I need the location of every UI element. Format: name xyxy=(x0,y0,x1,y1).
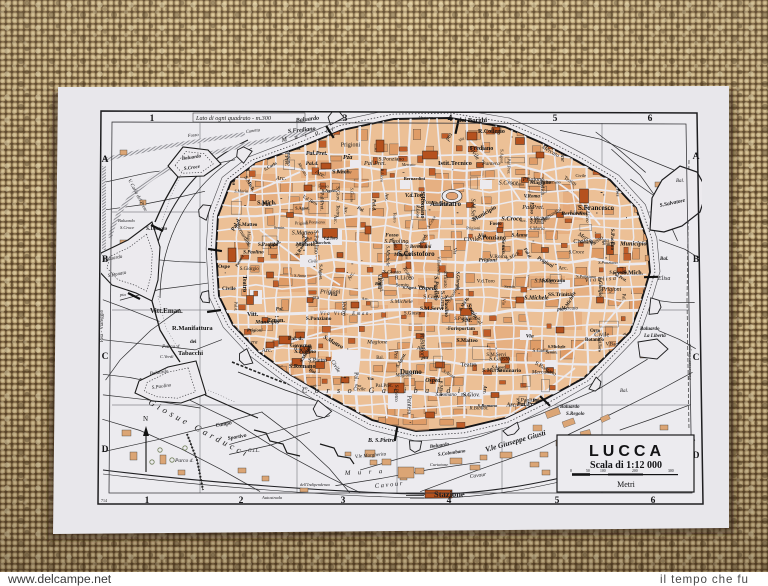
svg-text:S.Giov.: S.Giov. xyxy=(335,186,341,201)
svg-text:S.M.Servi: S.M.Servi xyxy=(486,353,506,358)
svg-text:Mercato: Mercato xyxy=(401,162,416,167)
svg-text:S.Michele: S.Michele xyxy=(390,299,413,305)
svg-text:Arc.: Arc. xyxy=(344,207,349,214)
svg-text:S.Regolo: S.Regolo xyxy=(566,412,585,417)
svg-text:Arc.: Arc. xyxy=(275,175,286,182)
svg-text:Arc.: Arc. xyxy=(362,296,370,301)
svg-text:B: B xyxy=(693,255,700,265)
svg-text:Fosso: Fosso xyxy=(318,184,329,189)
svg-text:Fosso: Fosso xyxy=(385,232,399,238)
svg-text:Montecatini-Empoli: Montecatini-Empoli xyxy=(687,343,692,380)
svg-text:Curtatone: Curtatone xyxy=(430,462,448,467)
svg-text:S.Ponziano: S.Ponziano xyxy=(598,260,618,265)
svg-text:S.Giusto: S.Giusto xyxy=(350,188,355,202)
svg-text:Mercato: Mercato xyxy=(560,306,578,311)
svg-text:Magione: Magione xyxy=(366,339,388,345)
svg-text:Lato di ogni quadrato - m.300: Lato di ogni quadrato - m.300 xyxy=(195,115,272,122)
svg-text:Via: Via xyxy=(452,248,457,255)
svg-text:B: B xyxy=(102,255,109,265)
svg-text:50: 50 xyxy=(586,469,590,473)
svg-text:Teatro: Teatro xyxy=(393,212,398,222)
svg-text:S.Michele: S.Michele xyxy=(524,295,549,301)
svg-text:S.Ponziano: S.Ponziano xyxy=(477,236,506,242)
svg-text:C: C xyxy=(693,353,700,363)
svg-text:Semin.: Semin. xyxy=(274,225,286,230)
svg-text:S.Giusto: S.Giusto xyxy=(404,312,422,317)
svg-text:Seminario: Seminario xyxy=(497,368,521,374)
svg-text:Anfiteatro: Anfiteatro xyxy=(430,200,461,208)
svg-text:Prigioni: Prigioni xyxy=(466,226,481,231)
svg-text:Vitt.: Vitt. xyxy=(247,312,259,318)
svg-text:1: 1 xyxy=(145,496,150,506)
svg-text:S.Mich.: S.Mich. xyxy=(257,200,277,206)
svg-text:V.d.Toro: V.d.Toro xyxy=(405,193,425,199)
svg-text:S.Gervasio: S.Gervasio xyxy=(542,279,566,284)
svg-text:A: A xyxy=(693,152,700,162)
svg-text:Botanico: Botanico xyxy=(585,338,604,343)
svg-text:Pza: Pza xyxy=(343,154,352,161)
svg-text:S.Croce: S.Croce xyxy=(501,216,522,223)
svg-text:S.Paolino: S.Paolino xyxy=(258,243,279,248)
svg-text:Governo: Governo xyxy=(290,343,311,349)
svg-text:Pisa - Viareggio: Pisa - Viareggio xyxy=(100,309,105,342)
svg-text:S.Giorgio: S.Giorgio xyxy=(454,271,459,290)
svg-text:V.Bacchett.: V.Bacchett. xyxy=(437,256,442,276)
svg-text:Frediano: Frediano xyxy=(470,146,493,152)
svg-text:Teatro: Teatro xyxy=(241,276,247,293)
svg-text:LUCCA: LUCCA xyxy=(589,443,665,460)
svg-text:N: N xyxy=(143,415,148,423)
svg-text:www.delcampe.net: www.delcampe.net xyxy=(7,572,112,586)
svg-text:Forisportam: Forisportam xyxy=(448,327,476,332)
svg-text:Pal.Pret.: Pal.Pret. xyxy=(306,151,328,157)
svg-text:Prigioni: Prigioni xyxy=(247,327,263,332)
svg-text:Pal.d.: Pal.d. xyxy=(306,161,319,167)
svg-text:Bal.: Bal. xyxy=(659,257,668,262)
svg-text:S.Matteo: S.Matteo xyxy=(238,223,258,228)
svg-text:S.Agost.: S.Agost. xyxy=(322,188,337,193)
svg-text:Arc.: Arc. xyxy=(262,347,273,354)
svg-text:Via: Via xyxy=(367,376,374,381)
svg-text:S.M.: S.M. xyxy=(462,319,473,324)
svg-text:Pal.d.: Pal.d. xyxy=(234,302,239,312)
svg-text:200: 200 xyxy=(632,469,638,473)
svg-text:5: 5 xyxy=(555,496,560,506)
svg-text:S.Giusto: S.Giusto xyxy=(383,269,401,275)
svg-text:R.Manifattura: R.Manifattura xyxy=(172,325,213,332)
svg-text:Baluardo: Baluardo xyxy=(639,327,660,332)
svg-text:S.Giorgio: S.Giorgio xyxy=(240,267,260,272)
svg-text:Pal.: Pal. xyxy=(620,294,625,301)
svg-text:S.Paolino: S.Paolino xyxy=(609,229,615,251)
svg-text:Arc.: Arc. xyxy=(332,215,338,224)
svg-text:Pal.Pret.: Pal.Pret. xyxy=(318,192,324,211)
svg-text:R.Collegio: R.Collegio xyxy=(478,129,505,135)
svg-text:Orto: Orto xyxy=(590,329,601,334)
svg-text:R.Bibliot.: R.Bibliot. xyxy=(469,407,489,412)
svg-text:Municipio: Municipio xyxy=(619,240,646,247)
svg-text:pta: pta xyxy=(119,292,127,297)
svg-text:S.Croce: S.Croce xyxy=(120,225,134,230)
svg-text:Civile: Civile xyxy=(222,286,236,292)
svg-text:Pal. d.: Pal. d. xyxy=(288,336,303,342)
svg-text:300: 300 xyxy=(668,469,674,473)
svg-text:3: 3 xyxy=(343,114,348,124)
svg-text:Via: Via xyxy=(502,299,507,305)
svg-text:S.Agost.: S.Agost. xyxy=(500,149,505,164)
svg-text:S.Giov.: S.Giov. xyxy=(423,295,441,301)
svg-text:Parco d.: Parco d. xyxy=(161,344,181,350)
svg-text:A: A xyxy=(102,155,109,165)
svg-text:dell'Indipendenza: dell'Indipendenza xyxy=(300,482,330,487)
svg-text:S.Agost.: S.Agost. xyxy=(403,285,418,290)
svg-text:Civile: Civile xyxy=(308,259,318,264)
svg-text:il tempo che fu: il tempo che fu xyxy=(660,573,749,586)
svg-text:Baluardo: Baluardo xyxy=(118,218,136,223)
svg-text:Arc.: Arc. xyxy=(506,403,517,409)
svg-text:D: D xyxy=(102,445,109,455)
svg-text:S.Ponziano: S.Ponziano xyxy=(305,219,325,224)
svg-text:S.Michele: S.Michele xyxy=(385,245,391,267)
svg-text:C: C xyxy=(102,352,109,362)
svg-text:Teatro: Teatro xyxy=(602,241,616,247)
svg-text:Bernardini: Bernardini xyxy=(404,176,426,181)
svg-text:dei: dei xyxy=(190,340,197,345)
svg-text:Abetone: Abetone xyxy=(417,115,433,120)
svg-text:Via Vitt. Eman.: Via Vitt. Eman. xyxy=(320,312,373,317)
svg-text:S.Romano: S.Romano xyxy=(289,364,316,370)
svg-text:S.Anna: S.Anna xyxy=(511,181,524,186)
svg-text:Arc.: Arc. xyxy=(482,385,487,395)
svg-text:2: 2 xyxy=(239,496,244,506)
svg-text:Metri: Metri xyxy=(617,480,636,489)
svg-text:Semin.: Semin. xyxy=(546,350,558,355)
svg-text:Pantera: Pantera xyxy=(406,395,413,414)
svg-text:100: 100 xyxy=(600,469,606,473)
svg-text:6: 6 xyxy=(651,496,656,506)
svg-text:Vitt.Eman.: Vitt.Eman. xyxy=(150,307,183,315)
svg-text:1: 1 xyxy=(150,114,155,124)
svg-text:Pantera: Pantera xyxy=(481,161,500,167)
svg-text:Pal.Pret.: Pal.Pret. xyxy=(507,157,512,174)
svg-text:R.Liceo: R.Liceo xyxy=(379,168,384,183)
svg-text:B. S.Pietro: B. S.Pietro xyxy=(367,438,395,444)
svg-text:Corso Garibaldi: Corso Garibaldi xyxy=(302,386,468,395)
svg-text:Semin.: Semin. xyxy=(504,284,516,289)
svg-text:S.Paolino: S.Paolino xyxy=(243,249,264,255)
svg-text:C.Verdi: C.Verdi xyxy=(160,354,174,359)
svg-text:S.Anna: S.Anna xyxy=(294,273,306,278)
svg-text:Civile: Civile xyxy=(573,239,588,245)
svg-text:Michele: Michele xyxy=(296,242,315,248)
svg-text:Pal.d.: Pal.d. xyxy=(371,199,377,211)
svg-text:S.Paolino: S.Paolino xyxy=(294,349,316,355)
svg-text:Bal.: Bal. xyxy=(676,179,684,184)
svg-text:Pal.Pret.: Pal.Pret. xyxy=(363,160,386,167)
svg-text:Arc.: Arc. xyxy=(385,193,390,201)
svg-text:S.Anna: S.Anna xyxy=(512,233,528,239)
svg-text:Prigioni: Prigioni xyxy=(341,142,361,148)
svg-text:S.Agost.: S.Agost. xyxy=(295,206,309,211)
svg-text:Via: Via xyxy=(330,293,338,298)
svg-text:S.Matteo: S.Matteo xyxy=(457,338,478,344)
svg-text:S.Romano: S.Romano xyxy=(333,169,352,174)
svg-text:S.M.Servi: S.M.Servi xyxy=(420,306,444,312)
svg-text:0: 0 xyxy=(570,469,572,473)
svg-text:S.Maria: S.Maria xyxy=(234,189,248,194)
svg-text:S.Giusto: S.Giusto xyxy=(442,271,447,288)
svg-text:Ospe: Ospe xyxy=(218,264,230,270)
svg-text:S.Maria: S.Maria xyxy=(529,227,545,232)
svg-text:4: 4 xyxy=(447,496,452,506)
svg-text:3: 3 xyxy=(341,496,346,506)
svg-text:R.Bibliot.: R.Bibliot. xyxy=(418,333,425,358)
svg-text:Eman.: Eman. xyxy=(268,318,285,324)
svg-text:S.Francesco: S.Francesco xyxy=(578,204,614,212)
svg-text:4: 4 xyxy=(448,114,453,124)
svg-text:Bal.: Bal. xyxy=(376,356,384,361)
svg-text:Istit.Tecnico: Istit.Tecnico xyxy=(438,160,472,167)
svg-text:Teatro: Teatro xyxy=(461,361,477,368)
svg-text:Via: Via xyxy=(418,284,425,289)
svg-text:Fosso: Fosso xyxy=(490,221,503,227)
svg-text:Bal.: Bal. xyxy=(620,389,628,394)
svg-text:Baluardo: Baluardo xyxy=(559,405,580,410)
svg-text:S.Agost.: S.Agost. xyxy=(318,264,323,280)
svg-text:Osped.: Osped. xyxy=(378,278,384,292)
svg-text:Autostrada: Autostrada xyxy=(261,495,283,500)
svg-text:Prigioni: Prigioni xyxy=(522,177,543,183)
svg-text:6: 6 xyxy=(648,114,653,124)
svg-text:Prigioni: Prigioni xyxy=(295,220,309,225)
svg-text:Via: Via xyxy=(526,334,534,340)
svg-text:Pal.: Pal. xyxy=(276,308,284,313)
svg-text:Civile: Civile xyxy=(576,173,587,178)
svg-text:SS.Trinità: SS.Trinità xyxy=(548,292,572,298)
svg-text:Tabacchi: Tabacchi xyxy=(178,350,203,357)
svg-text:V.Roma: V.Roma xyxy=(524,194,541,199)
svg-text:pta: pta xyxy=(313,295,320,301)
svg-text:V.d.Toro: V.d.Toro xyxy=(477,279,495,285)
svg-text:5: 5 xyxy=(553,114,558,124)
svg-text:R.Liceo: R.Liceo xyxy=(395,276,414,282)
svg-text:Elisa: Elisa xyxy=(657,276,670,282)
svg-text:Pza: Pza xyxy=(392,351,398,359)
svg-text:Parco d.: Parco d. xyxy=(174,458,194,464)
svg-text:714: 714 xyxy=(101,498,107,503)
svg-text:S.Cristoforo: S.Cristoforo xyxy=(398,250,435,258)
svg-text:Fosso: Fosso xyxy=(529,202,534,214)
svg-text:Prigioni: Prigioni xyxy=(601,287,622,293)
svg-text:La Libertà: La Libertà xyxy=(643,334,666,339)
svg-text:Duomo: Duomo xyxy=(400,368,422,376)
svg-text:S.Croce: S.Croce xyxy=(569,250,585,255)
svg-text:S.Michele: S.Michele xyxy=(548,344,566,349)
svg-text:Pal.: Pal. xyxy=(353,372,359,381)
svg-text:S.Donato: S.Donato xyxy=(146,226,167,232)
svg-text:S.Maria: S.Maria xyxy=(530,218,547,223)
svg-text:Arc.: Arc. xyxy=(558,266,568,272)
